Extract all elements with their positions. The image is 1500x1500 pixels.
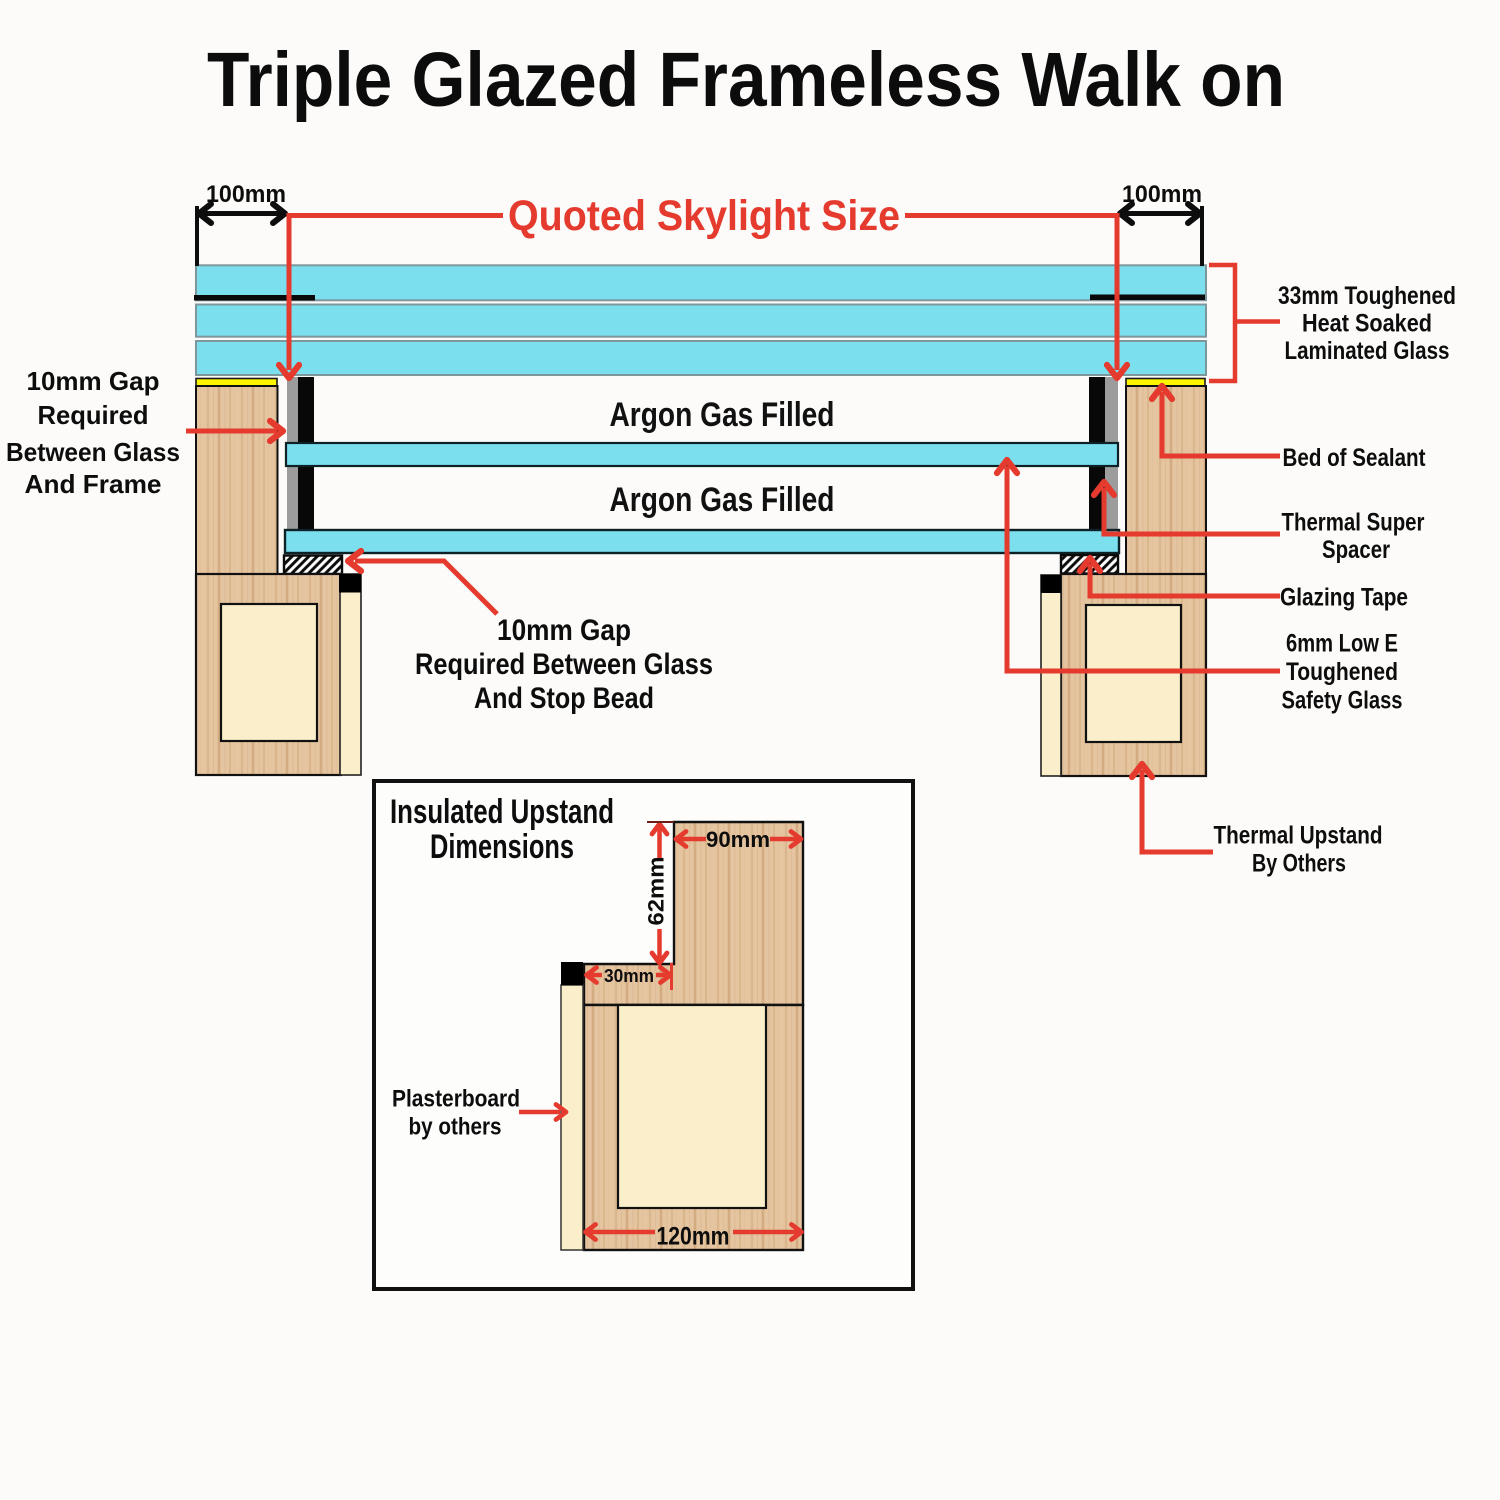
svg-text:6mm Low E: 6mm Low E (1286, 630, 1398, 658)
svg-text:Heat Soaked: Heat Soaked (1302, 310, 1432, 338)
svg-text:100mm: 100mm (206, 181, 286, 208)
svg-text:And Frame: And Frame (25, 469, 162, 499)
svg-text:10mm Gap: 10mm Gap (497, 614, 631, 647)
svg-text:33mm Toughened: 33mm Toughened (1278, 282, 1456, 310)
svg-text:10mm Gap: 10mm Gap (27, 366, 160, 396)
svg-text:62mm: 62mm (644, 857, 669, 926)
svg-text:And Stop Bead: And Stop Bead (474, 682, 654, 715)
svg-text:Dimensions: Dimensions (430, 828, 574, 866)
svg-text:Spacer: Spacer (1322, 536, 1390, 564)
svg-text:Laminated Glass: Laminated Glass (1285, 337, 1450, 365)
svg-text:Bed of Sealant: Bed of Sealant (1283, 444, 1427, 472)
svg-text:Safety Glass: Safety Glass (1282, 687, 1403, 715)
svg-text:30mm: 30mm (604, 966, 654, 986)
svg-text:120mm: 120mm (657, 1223, 730, 1251)
svg-text:Glazing Tape: Glazing Tape (1280, 584, 1408, 612)
svg-text:Toughened: Toughened (1286, 658, 1398, 686)
svg-text:90mm: 90mm (706, 827, 770, 852)
svg-text:Argon Gas Filled: Argon Gas Filled (610, 481, 835, 519)
svg-text:Thermal Upstand: Thermal Upstand (1214, 822, 1383, 850)
svg-text:Thermal Super: Thermal Super (1282, 509, 1425, 537)
svg-text:Insulated Upstand: Insulated Upstand (390, 793, 614, 831)
svg-text:by others: by others (409, 1114, 502, 1141)
svg-text:Quoted Skylight Size: Quoted Skylight Size (508, 192, 900, 240)
svg-text:Triple Glazed Frameless Walk o: Triple Glazed Frameless Walk on (207, 37, 1285, 123)
svg-text:100mm: 100mm (1122, 181, 1202, 208)
svg-text:Required: Required (38, 400, 149, 430)
svg-text:Plasterboard: Plasterboard (392, 1086, 520, 1113)
svg-text:By Others: By Others (1252, 850, 1346, 878)
svg-text:Required Between Glass: Required Between Glass (415, 648, 713, 681)
svg-text:Argon Gas Filled: Argon Gas Filled (610, 396, 835, 434)
svg-text:Between Glass: Between Glass (6, 437, 180, 467)
